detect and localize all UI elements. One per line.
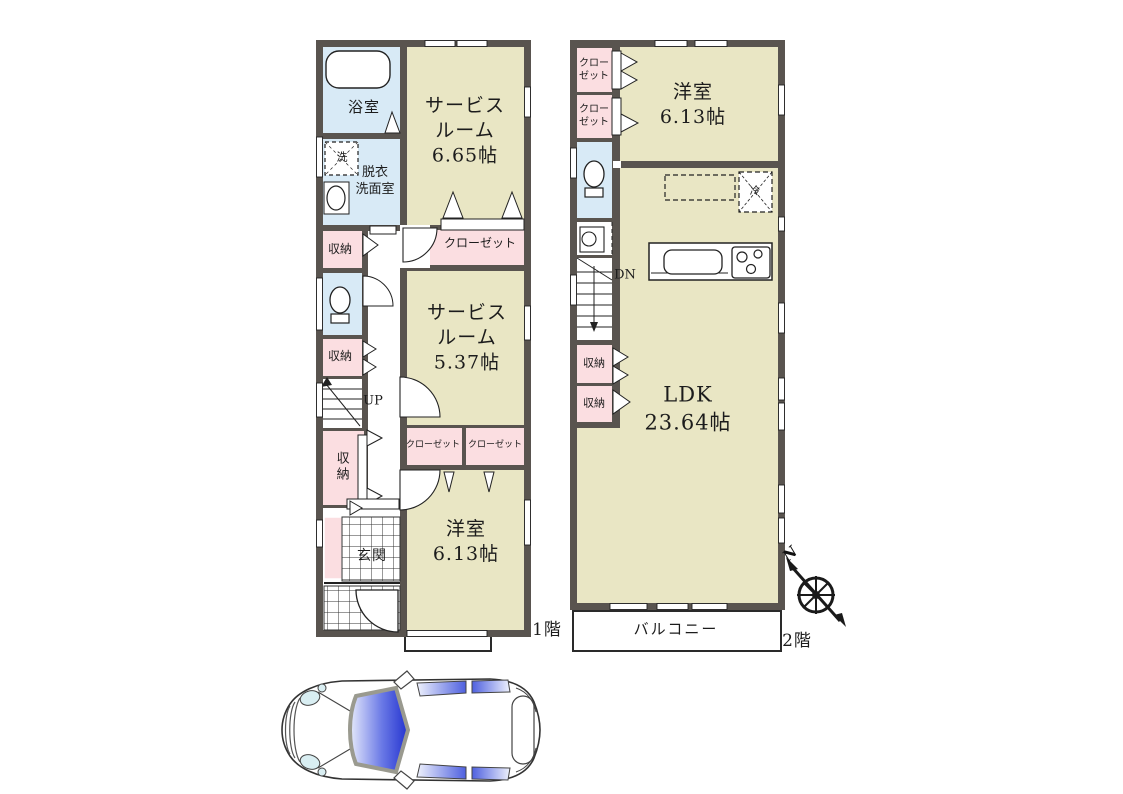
stairs-up-label: UP <box>363 392 383 409</box>
storage2-label: 収納 <box>328 349 352 365</box>
shoe-cabinet <box>324 517 342 579</box>
western-room-f2-label: 洋室 6.13帖 <box>660 80 726 130</box>
western-room-f1-label: 洋室 6.13帖 <box>433 517 499 567</box>
entrance-label: 玄関 <box>357 547 387 565</box>
toilet-icon-f1 <box>330 287 350 313</box>
toilet-icon-f2 <box>584 161 604 187</box>
bath-label: 浴室 <box>348 98 380 118</box>
ldk-label: LDK 23.64帖 <box>644 381 731 436</box>
entrance-porch <box>404 637 492 652</box>
storage-a-label: 収納 <box>583 357 605 372</box>
storage3-label: 収納 <box>332 451 349 483</box>
closet-right-label: クローゼット <box>468 440 522 452</box>
balcony-label: バルコニー <box>634 620 719 640</box>
kitchen-sink-icon <box>664 250 722 274</box>
storage-b-label: 収納 <box>583 397 605 412</box>
storage1-label: 収納 <box>328 242 352 258</box>
washer-label: 洗 <box>337 151 348 166</box>
closet-left-label: クローゼット <box>406 440 460 452</box>
floor2-caption: 2階 <box>782 630 812 652</box>
service-room1-label: サービス ルーム 6.65帖 <box>425 93 505 168</box>
service-room2-label: サービス ルーム 5.37帖 <box>427 300 507 375</box>
stairs-down-label: DN <box>614 266 636 283</box>
closet-main-label: クローゼット <box>444 236 516 252</box>
floor1-caption: 1階 <box>532 619 562 641</box>
car-top-view-illustration <box>276 668 548 792</box>
closet-a-label: クロー ゼット <box>579 57 609 83</box>
closet-b-label: クロー ゼット <box>579 103 609 129</box>
powder-room-label: 脱衣 洗面室 <box>355 164 394 198</box>
floorplan-page: 浴室 洗 脱衣 洗面室 収納 収納 収納 UP 玄関 サービス ルーム 6.65… <box>0 0 1123 794</box>
fridge-label: 冷 <box>750 185 761 199</box>
bathtub-icon <box>326 51 390 88</box>
sink-icon <box>327 186 345 210</box>
